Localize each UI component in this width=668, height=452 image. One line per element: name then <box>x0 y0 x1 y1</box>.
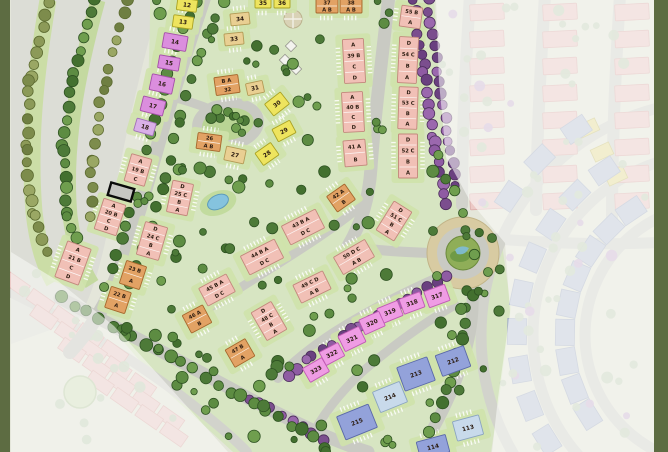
plot-55[interactable]: 55 BA <box>399 5 423 29</box>
plot-label: 52 C <box>402 148 415 154</box>
site-plan-screenshot: 121314151617183433353637A B38A BB A32313… <box>0 0 668 452</box>
plot-label: 34 <box>236 16 245 23</box>
plot-label: C <box>352 64 356 70</box>
plot-label: B <box>406 159 410 165</box>
plot-label: A <box>351 42 355 48</box>
plot-label: A <box>405 75 409 81</box>
plot-label: 37 <box>323 0 331 6</box>
plot-label: A B <box>346 7 356 13</box>
plot-label: 35 <box>259 1 267 7</box>
plot-label: C <box>351 115 355 121</box>
plot-label: 54 C <box>402 52 415 59</box>
plot-label: 32 <box>224 87 232 94</box>
plot-label: A B <box>322 7 332 13</box>
site-plan-map: 121314151617183433353637A B38A BB A32313… <box>0 0 668 452</box>
plot-33[interactable]: 33 <box>224 32 244 46</box>
plot-36[interactable]: 36 <box>274 0 290 8</box>
plot-41[interactable]: 41 AB <box>343 139 367 167</box>
plot-label: 12 <box>182 2 191 9</box>
plot-label: D <box>406 137 411 143</box>
plot-52[interactable]: D52 CBA <box>399 134 418 178</box>
frame-border-left <box>0 0 10 452</box>
plot-label: 13 <box>178 19 187 26</box>
plot-35[interactable]: 35 <box>255 0 271 8</box>
plot-37[interactable]: 37A B <box>316 0 338 13</box>
plot-40[interactable]: A40 BCD <box>341 91 364 132</box>
plot-label: A <box>406 170 410 176</box>
plot-label: B <box>406 111 410 117</box>
plot-label: 33 <box>230 36 239 43</box>
plot-32[interactable]: B A32 <box>214 74 240 95</box>
plot-54[interactable]: D54 CBA <box>397 37 418 84</box>
plot-label: 40 B <box>346 105 359 112</box>
frame-border-right <box>654 0 668 452</box>
plot-label: A <box>350 95 354 101</box>
plot-26[interactable]: 26A B <box>196 132 222 151</box>
plot-38[interactable]: 38A B <box>340 0 362 13</box>
plot-label: 38 <box>347 0 355 6</box>
plot-label: A <box>405 122 409 128</box>
plot-label: B <box>406 64 410 70</box>
plot-39[interactable]: A39 BCD <box>342 38 365 83</box>
plot-label: A <box>408 20 413 27</box>
plot-label: 26 <box>205 135 213 142</box>
plot-53[interactable]: D53 CBA <box>398 87 418 130</box>
plot-label: 39 B <box>347 53 360 60</box>
plot-34[interactable]: 34 <box>230 12 250 26</box>
plot-13[interactable]: 13 <box>172 15 193 30</box>
plot-label: 53 C <box>402 100 415 106</box>
plot-label: 36 <box>278 1 286 7</box>
plot-label: 41 A <box>348 144 362 151</box>
plot-label: B <box>353 157 358 163</box>
